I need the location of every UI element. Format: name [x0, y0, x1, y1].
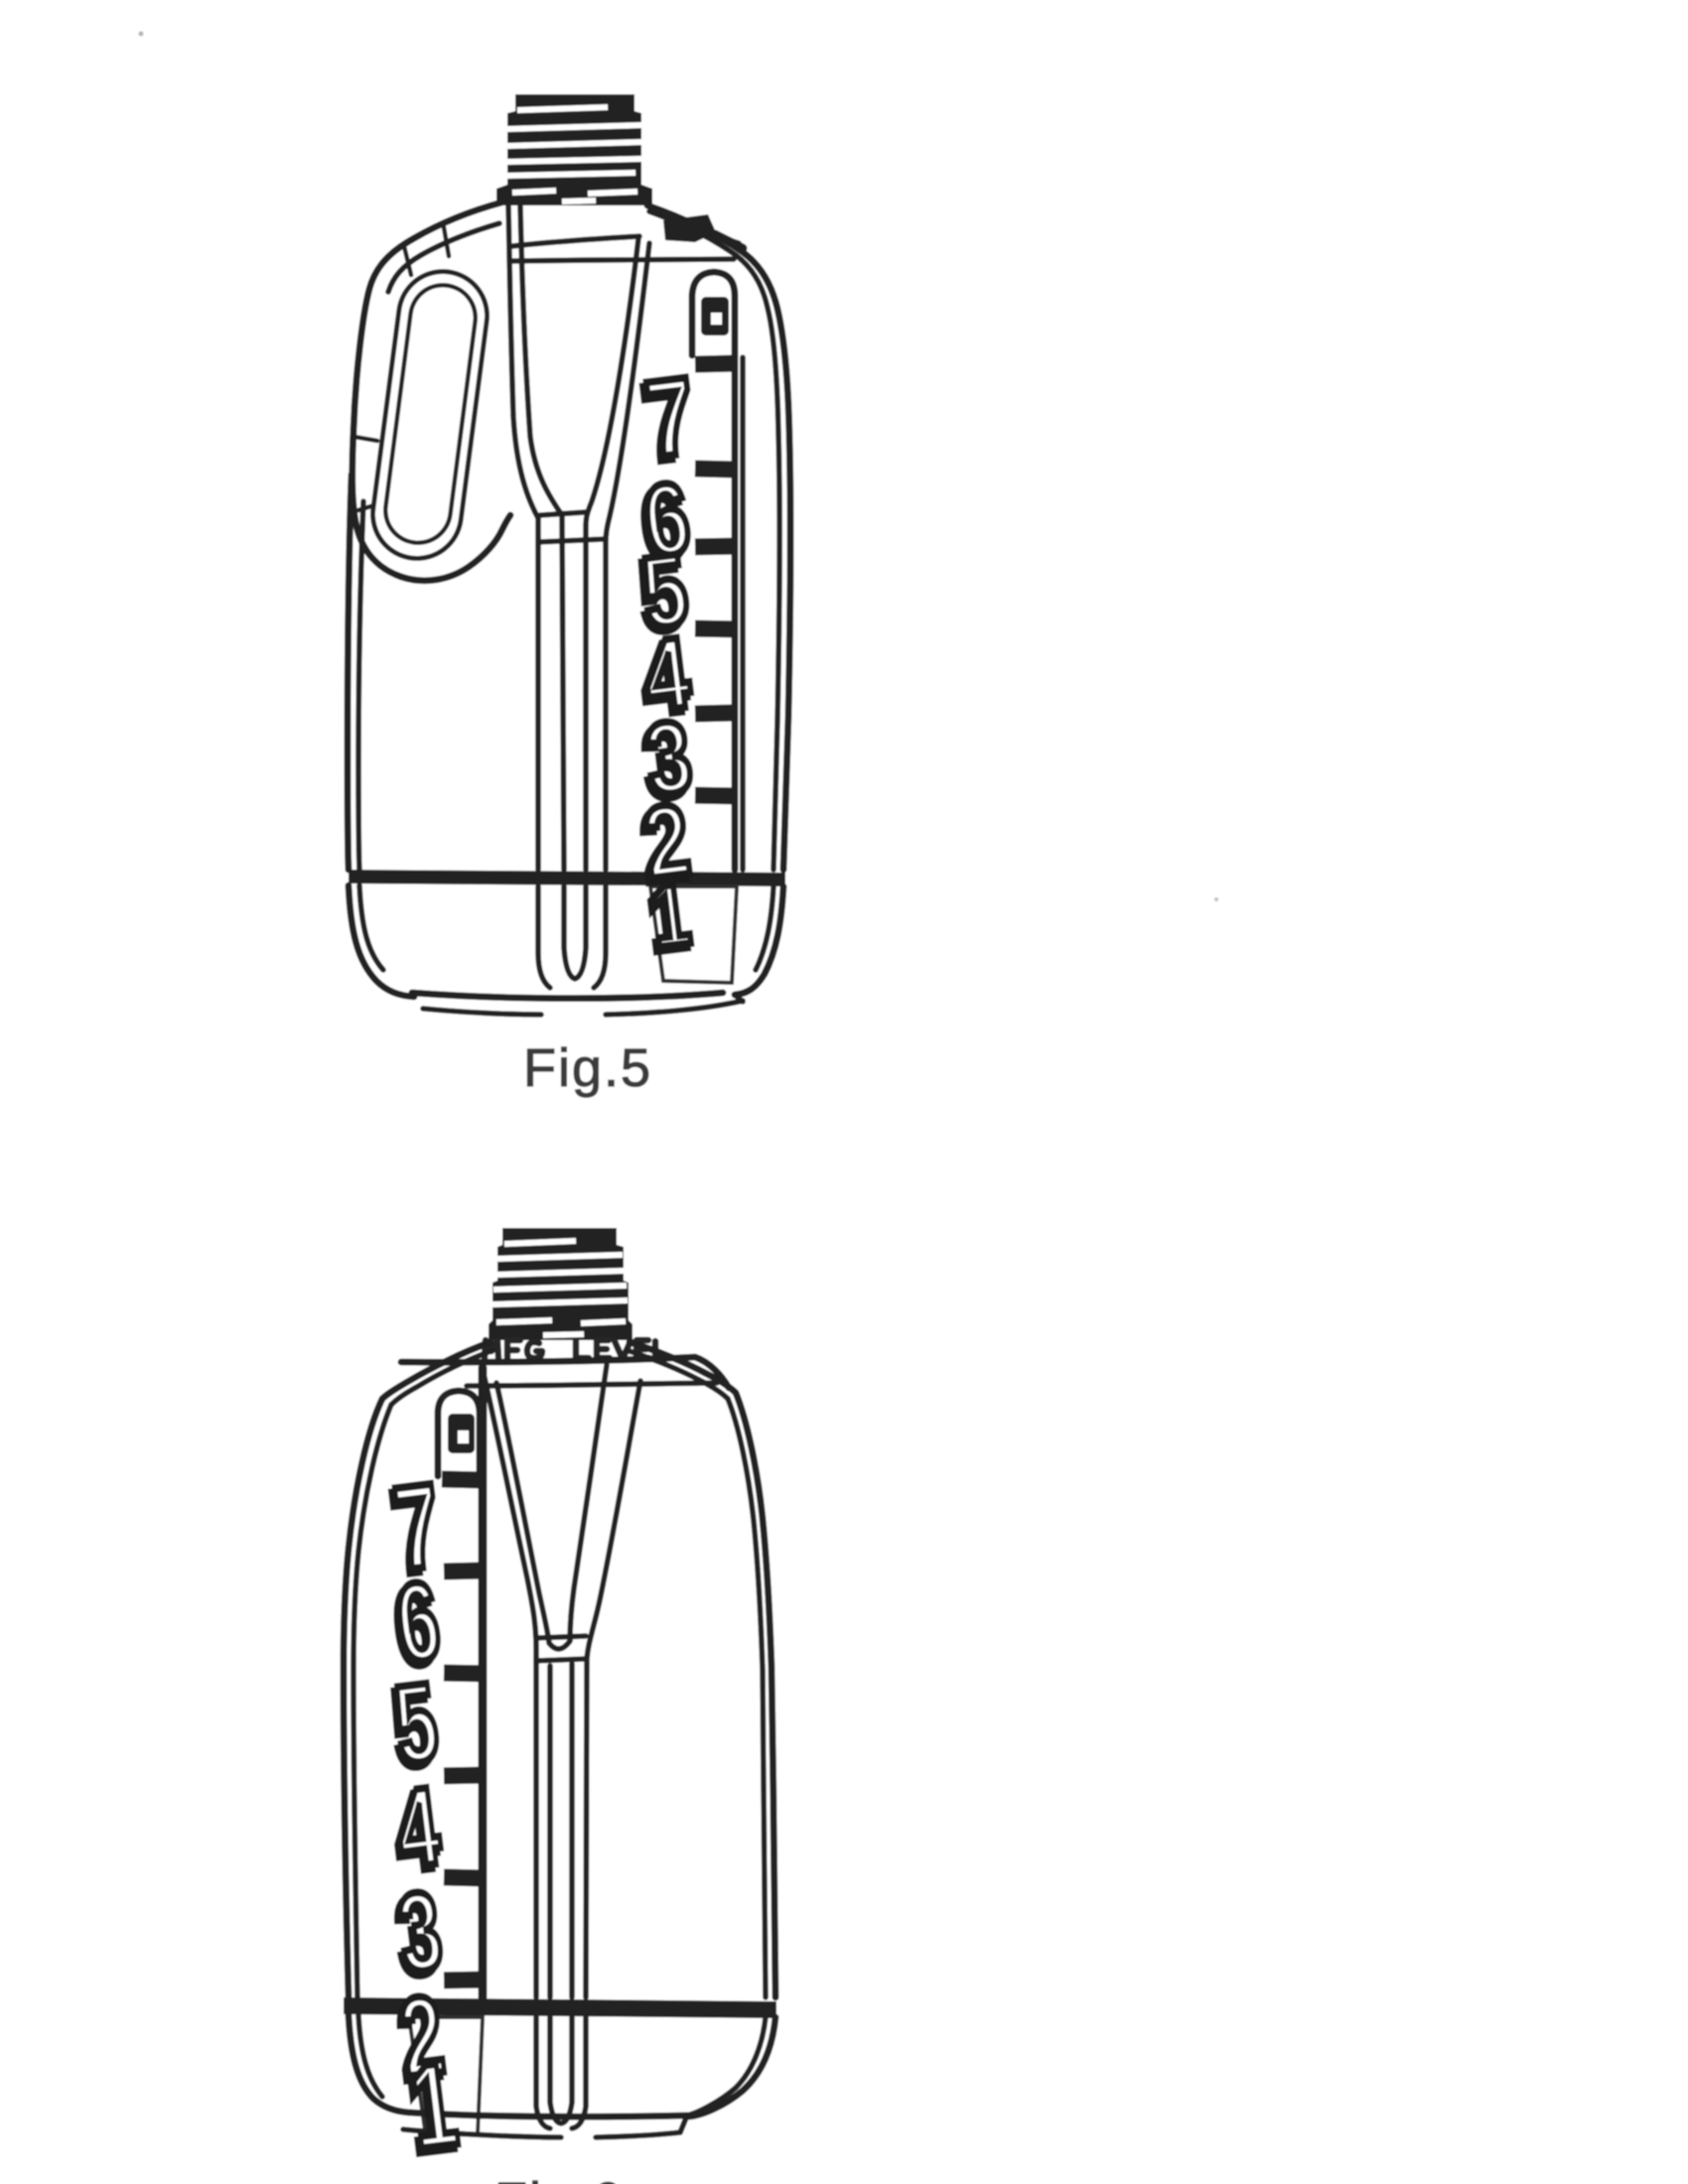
- svg-text:Fig.5: Fig.5: [523, 1038, 652, 1098]
- svg-text:Fig.6: Fig.6: [494, 2172, 624, 2184]
